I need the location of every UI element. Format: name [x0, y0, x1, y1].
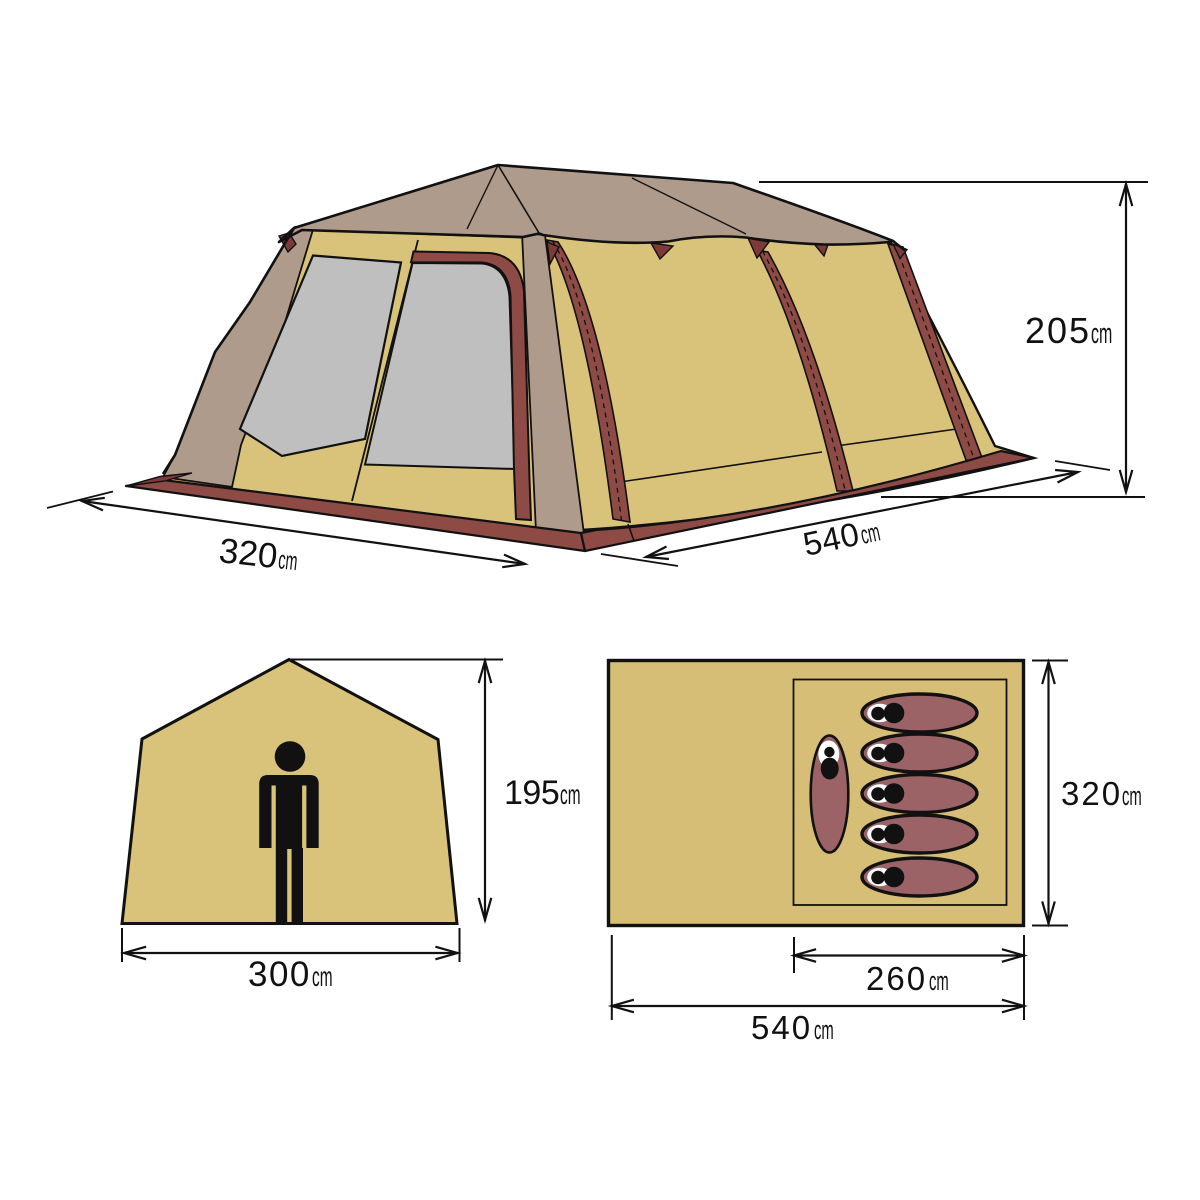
svg-text:cm: cm — [560, 779, 581, 810]
svg-text:260: 260 — [866, 960, 927, 997]
svg-text:cm: cm — [858, 518, 883, 550]
svg-text:540: 540 — [800, 515, 863, 563]
svg-text:320: 320 — [1061, 775, 1122, 812]
svg-text:cm: cm — [814, 1014, 834, 1045]
svg-text:195: 195 — [504, 774, 559, 812]
svg-text:cm: cm — [312, 961, 333, 992]
svg-text:540: 540 — [751, 1009, 812, 1046]
svg-text:320: 320 — [217, 531, 279, 576]
svg-text:cm: cm — [1091, 317, 1112, 349]
svg-text:cm: cm — [1122, 780, 1142, 811]
svg-text:205: 205 — [1025, 310, 1091, 351]
svg-text:cm: cm — [929, 965, 949, 996]
svg-text:cm: cm — [277, 546, 299, 576]
svg-text:300: 300 — [248, 955, 311, 994]
